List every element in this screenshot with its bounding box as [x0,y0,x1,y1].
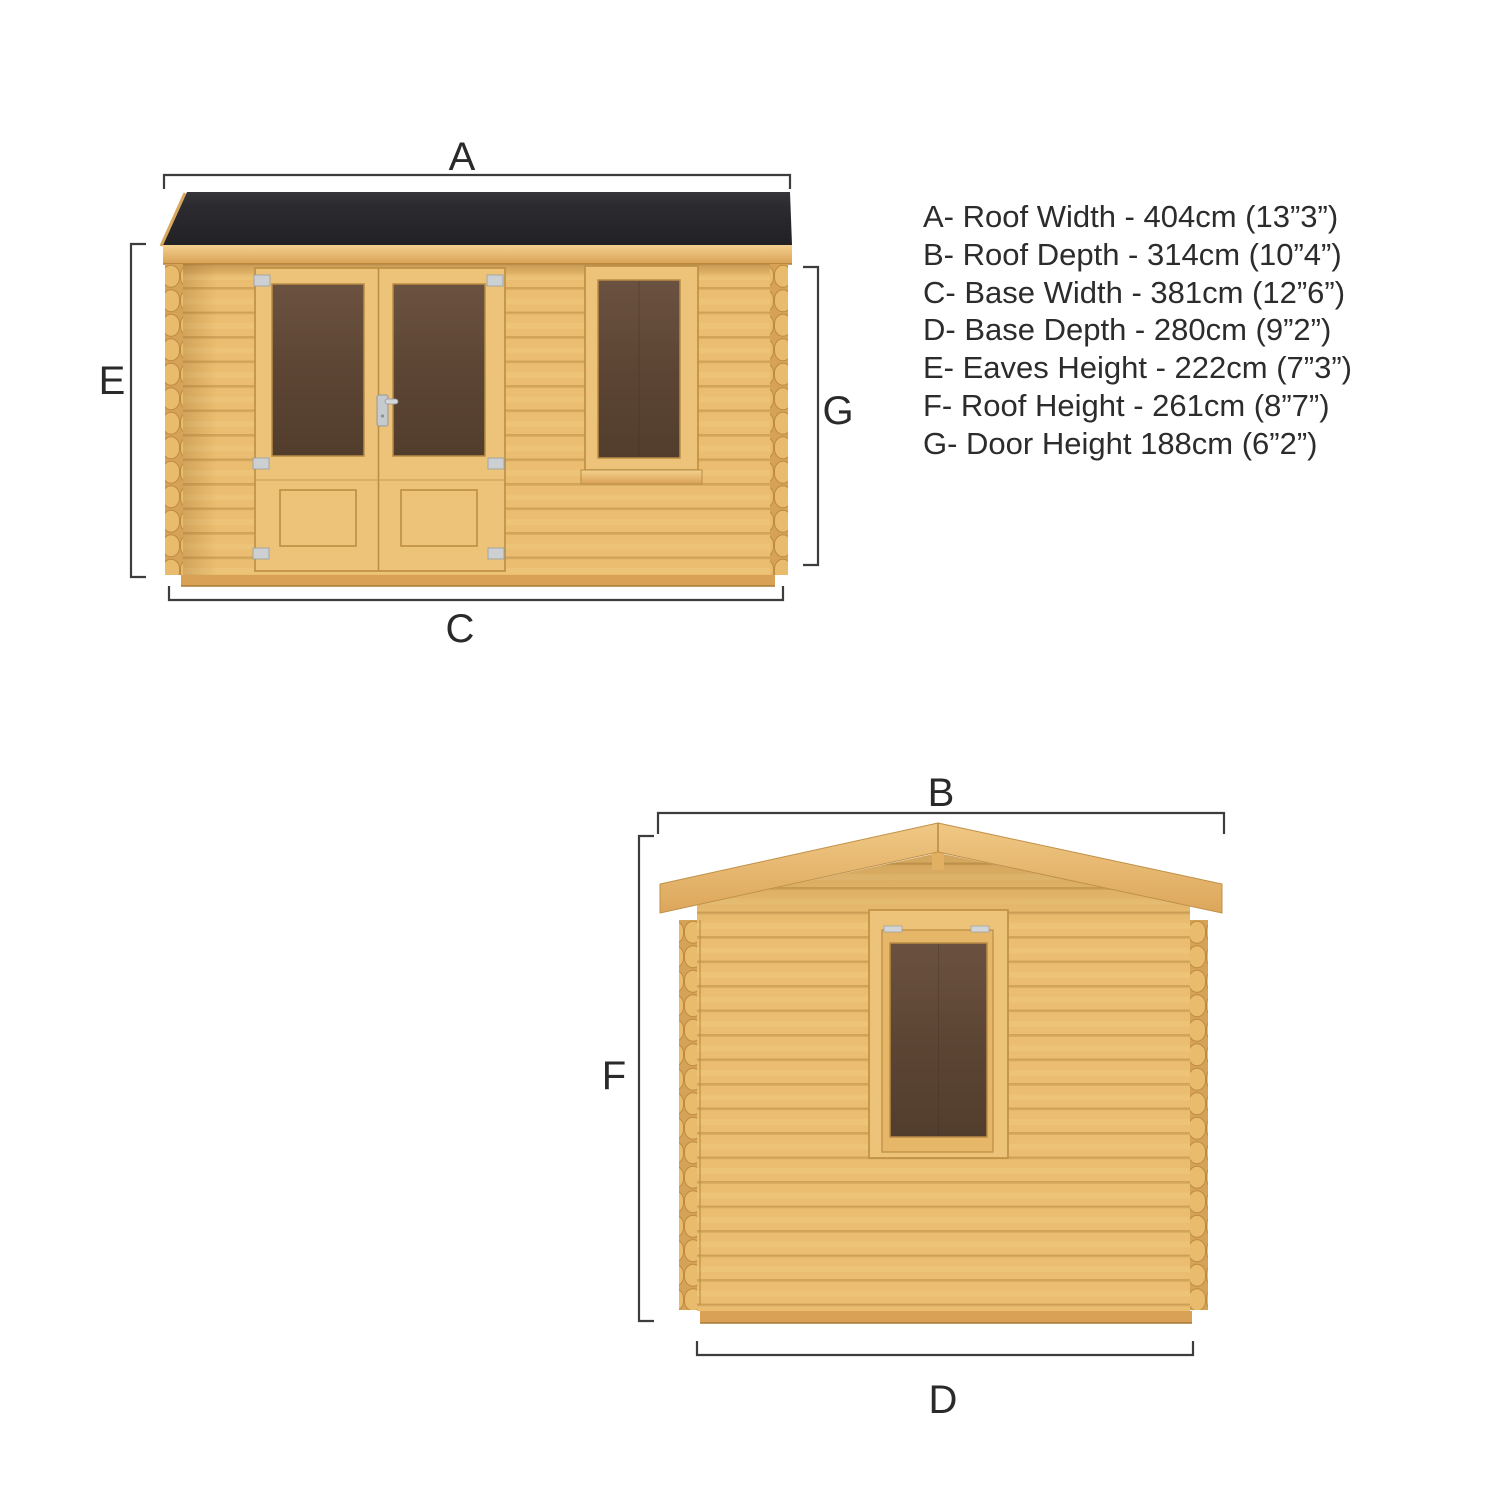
dimension-legend: A- Roof Width - 404cm (13”3”) B- Roof De… [923,198,1443,463]
legend-line-f: F- Roof Height - 261cm (8”7”) [923,387,1443,425]
dim-label-d: D [929,1378,958,1422]
front-base-plinth [181,575,775,586]
legend-line-d: D- Base Depth - 280cm (9”2”) [923,311,1443,349]
hinge-icon [253,548,269,559]
dim-label-e: E [99,359,126,403]
hinge-icon [488,548,504,559]
log-ends-right [1190,920,1208,1310]
window-hinge-icon [971,926,989,932]
hinge-icon [254,275,270,286]
double-doors [253,268,505,571]
hinge-icon [253,458,269,469]
log-ends-left [679,920,697,1310]
legend-line-c: C- Base Width - 381cm (12”6”) [923,274,1443,312]
front-elevation-diagram: A E G C [90,120,860,660]
legend-line-b: B- Roof Depth - 314cm (10”4”) [923,236,1443,274]
front-window-sill [581,470,702,484]
dimension-diagram-page: A E G C [0,0,1500,1500]
legend-line-e: E- Eaves Height - 222cm (7”3”) [923,349,1443,387]
front-fascia-board [163,245,792,264]
dim-line-a [164,175,790,189]
dim-line-f [639,836,654,1321]
hinge-icon [488,458,504,469]
front-roof [161,192,792,264]
legend-line-g: G- Door Height 188cm (6”2”) [923,425,1443,463]
door-glass-right [393,284,485,456]
log-ends-right [770,264,788,575]
side-base-plinth [700,1311,1192,1323]
side-window [869,910,1008,1158]
dim-label-c: C [446,607,475,651]
log-ends-left [165,264,183,575]
legend-line-a: A- Roof Width - 404cm (13”3”) [923,198,1443,236]
dim-label-f: F [602,1054,626,1098]
corner-shade [183,264,217,575]
side-elevation-diagram: B F D [570,760,1380,1440]
dim-label-a: A [449,135,476,179]
dim-line-d [697,1341,1193,1355]
dim-label-b: B [928,771,955,815]
dim-line-g [803,267,818,565]
dim-line-c [169,586,783,600]
front-window [581,266,702,484]
hinge-icon [487,275,503,286]
window-hinge-icon [884,926,902,932]
dim-line-e [131,244,146,577]
roof-felt-front [163,192,792,245]
door-glass-left [272,284,364,456]
dim-label-g: G [822,389,853,433]
